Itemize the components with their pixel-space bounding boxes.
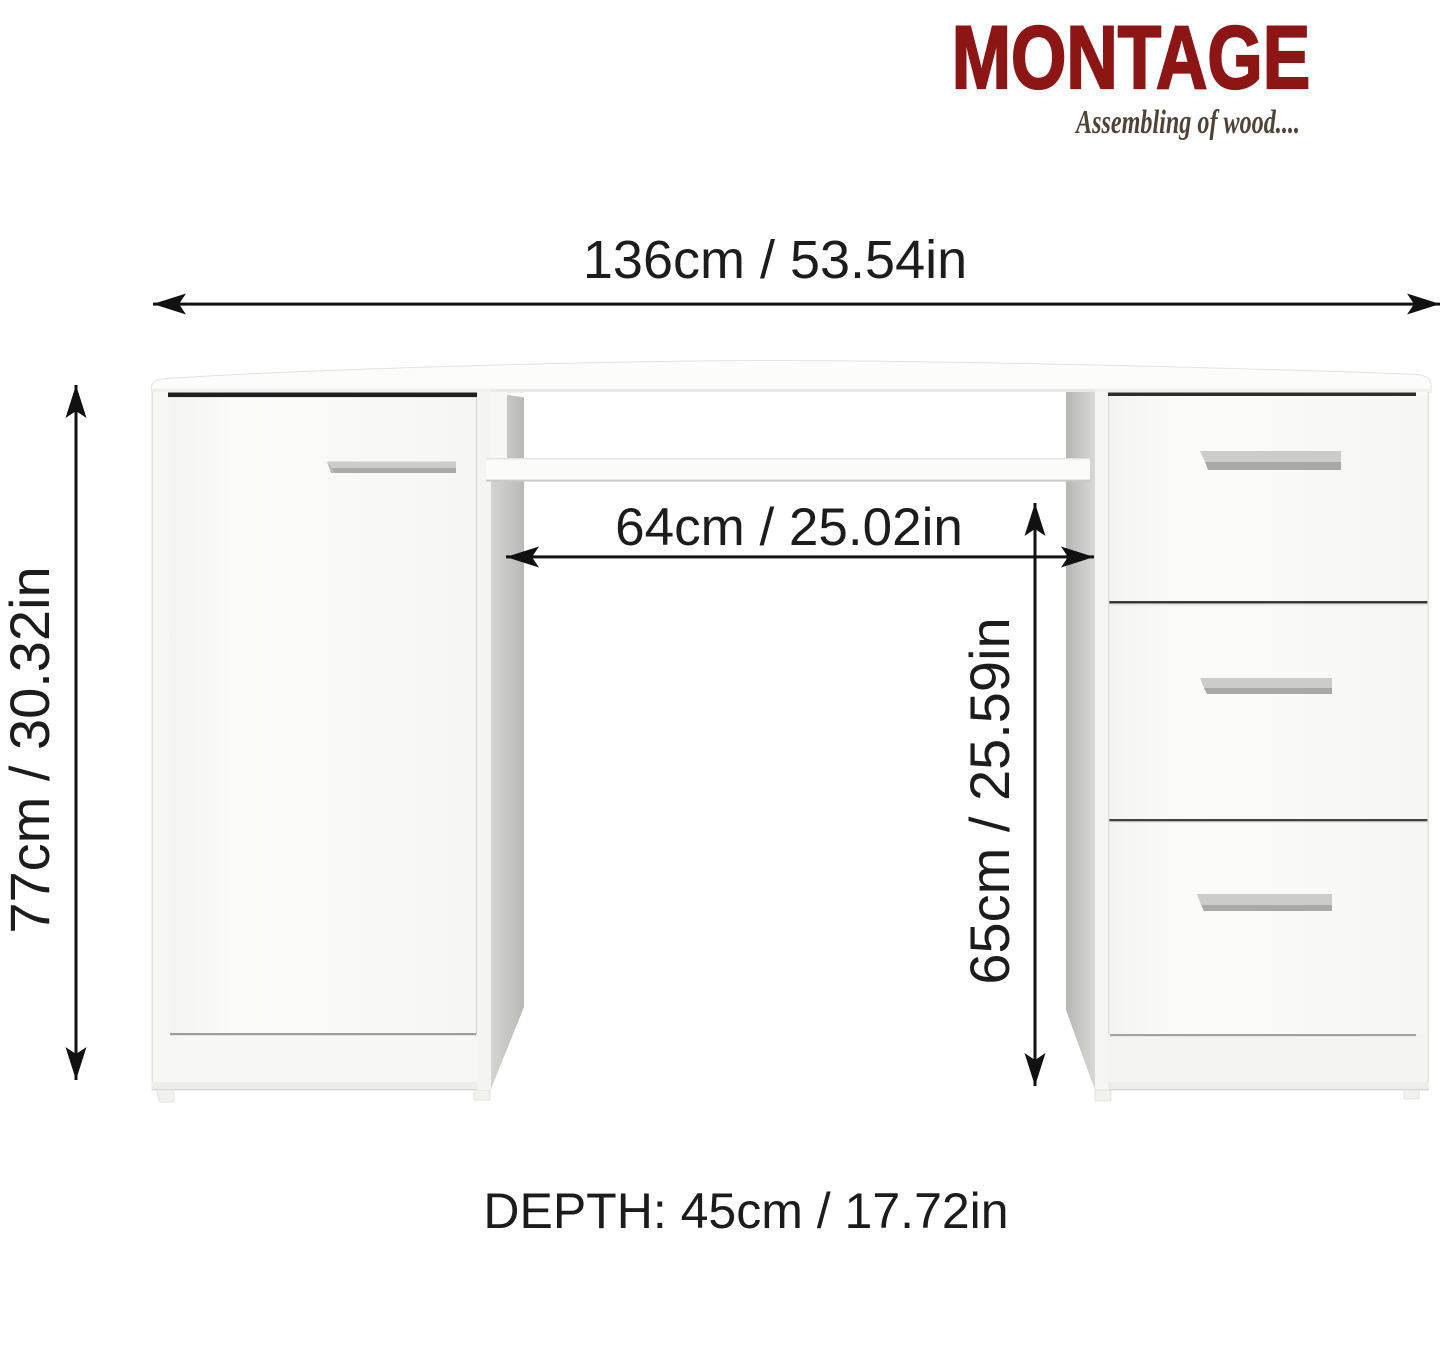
svg-text:136cm / 53.54in: 136cm / 53.54in — [583, 230, 967, 290]
svg-text:DEPTH: 45cm / 17.72in: DEPTH: 45cm / 17.72in — [483, 1183, 1008, 1239]
svg-text:Assembling of wood....: Assembling of wood.... — [1074, 104, 1300, 141]
svg-text:65cm / 25.59in: 65cm / 25.59in — [958, 617, 1021, 984]
svg-text:MONTAGE: MONTAGE — [952, 8, 1311, 107]
svg-text:77cm / 30.32in: 77cm / 30.32in — [0, 566, 61, 933]
svg-text:64cm / 25.02in: 64cm / 25.02in — [615, 498, 963, 557]
